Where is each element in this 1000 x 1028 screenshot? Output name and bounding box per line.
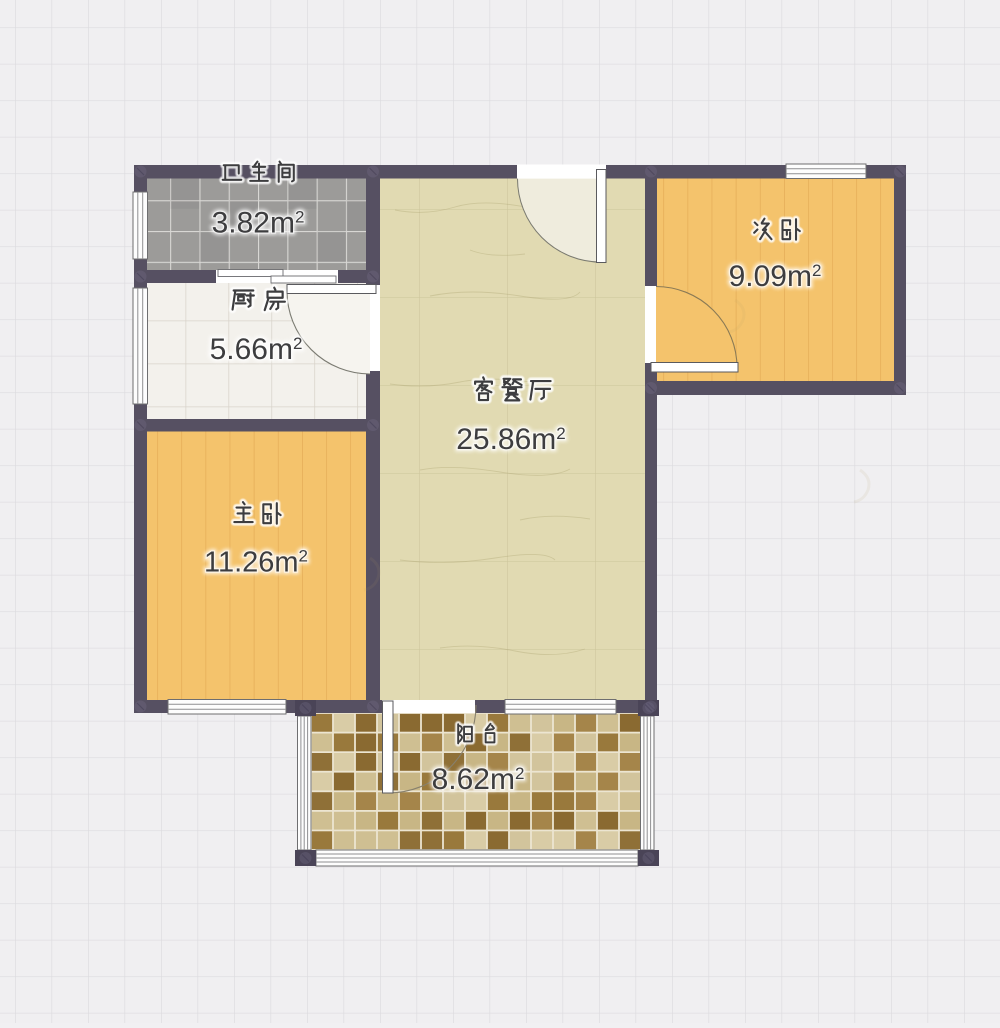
svg-text:5.66m2: 5.66m2 (210, 333, 303, 366)
svg-text:3.82m2: 3.82m2 (212, 206, 305, 239)
svg-text:8.62m2: 8.62m2 (432, 763, 525, 796)
svg-text:11.26m2: 11.26m2 (204, 546, 308, 578)
svg-text:25.86m2: 25.86m2 (456, 423, 566, 456)
svg-text:9.09m2: 9.09m2 (729, 260, 822, 293)
